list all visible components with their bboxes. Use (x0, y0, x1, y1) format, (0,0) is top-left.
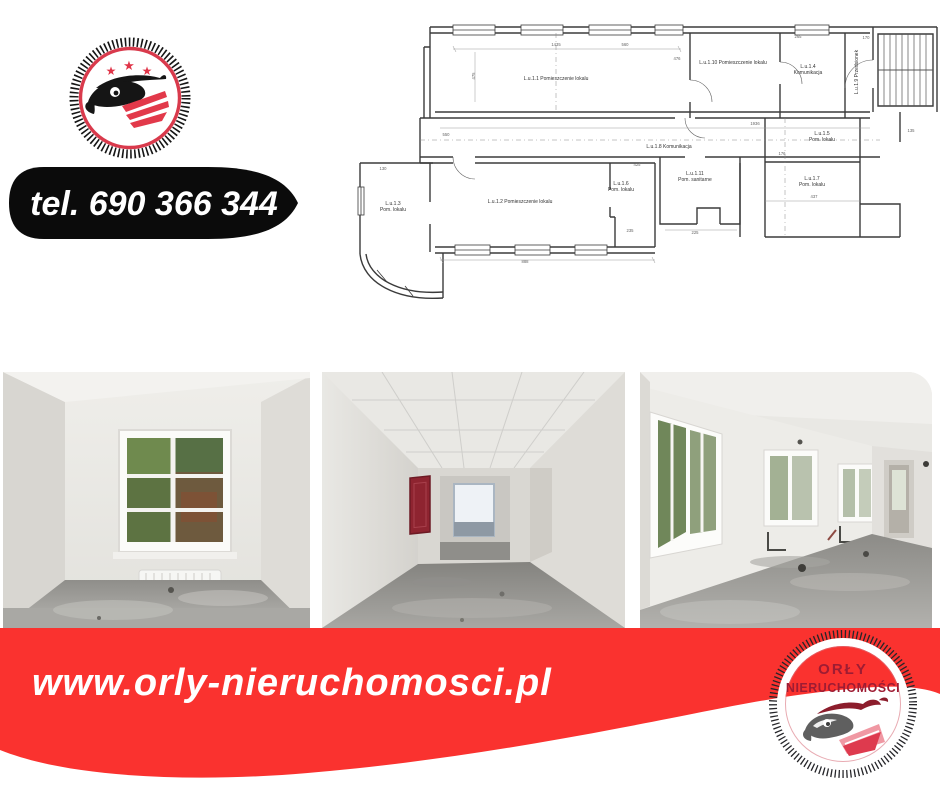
plan-dimension-label: 475 (471, 72, 476, 80)
plan-dimension-label: 550 (443, 132, 451, 137)
svg-text:★: ★ (123, 58, 135, 73)
plan-dimension-label: 225 (692, 230, 700, 235)
plan-dimension-label: 1435 (551, 42, 561, 47)
plan-room-label: L.u.1.1 Pomieszczenie lokalu (524, 76, 589, 82)
stamp-line2: NIERUCHOMOŚCI (786, 680, 900, 695)
real-estate-flyer: { "header": { "phone_label": "tel. 690 3… (0, 0, 940, 788)
plan-room-label: Pom. lokalu (799, 182, 825, 188)
plan-room-label: Pom. lokalu (809, 137, 835, 143)
stamp-logo: ORŁY NIERUCHOMOŚCI (761, 628, 925, 788)
photo-open-space (640, 372, 932, 628)
photo-strip-background (0, 361, 940, 628)
plan-dimension-label: 130 (380, 166, 388, 171)
plan-dimension-label: 425 (634, 162, 642, 167)
plan-room-label: Pom. lokalu (380, 207, 406, 213)
plan-dimension-label: 265 (795, 34, 803, 39)
plan-room-label: Pom. lokalu (608, 187, 634, 193)
phone-banner: tel. 690 366 344 (8, 166, 300, 240)
plan-dimension-label: 170 (863, 35, 871, 40)
plan-dimension-label: 135 (908, 128, 916, 133)
plan-room-label: L.u.1.9 Przedsionek (854, 49, 860, 94)
stamp-line1: ORŁY (818, 661, 868, 678)
floor-plan: L.u.1.1 Pomieszczenie lokaluL.u.1.10 Pom… (325, 2, 940, 302)
photo-corridor (322, 372, 625, 628)
eagle-seal-icon: ★ ★ ★ (66, 34, 194, 162)
plan-dimension-label: 176 (779, 151, 787, 156)
plan-room-label: L.u.1.10 Pomieszczenie lokalu (699, 60, 767, 66)
plan-room-label: L.u.1.8 Komunikacja (646, 144, 692, 150)
floor-plan-drawing: L.u.1.1 Pomieszczenie lokaluL.u.1.10 Pom… (325, 2, 940, 302)
svg-text:★: ★ (106, 64, 117, 78)
plan-room-label: Komunikacja (794, 70, 823, 76)
plan-dimension-label: 437 (811, 194, 819, 199)
plan-dimension-label: 888 (522, 259, 530, 264)
plan-room-label: Pom. sanitarne (678, 177, 712, 183)
plan-dimension-label: 476 (674, 56, 682, 61)
plan-dimension-label: 1936 (750, 121, 760, 126)
company-seal-logo: ★ ★ ★ (66, 34, 194, 162)
plan-room-label: L.u.1.2 Pomieszczenie lokalu (488, 199, 553, 205)
photo-empty-room-window (3, 372, 310, 628)
footer-wave-band: www.orly-nieruchomosci.pl ORŁY NIERUCHOM… (0, 628, 940, 788)
plan-dimension-label: 235 (627, 228, 635, 233)
plan-dimension-label: 560 (622, 42, 630, 47)
website-url: www.orly-nieruchomosci.pl (32, 662, 552, 705)
eagle-stamp-icon: ORŁY NIERUCHOMOŚCI (761, 628, 925, 788)
phone-number: tel. 690 366 344 (30, 185, 278, 223)
